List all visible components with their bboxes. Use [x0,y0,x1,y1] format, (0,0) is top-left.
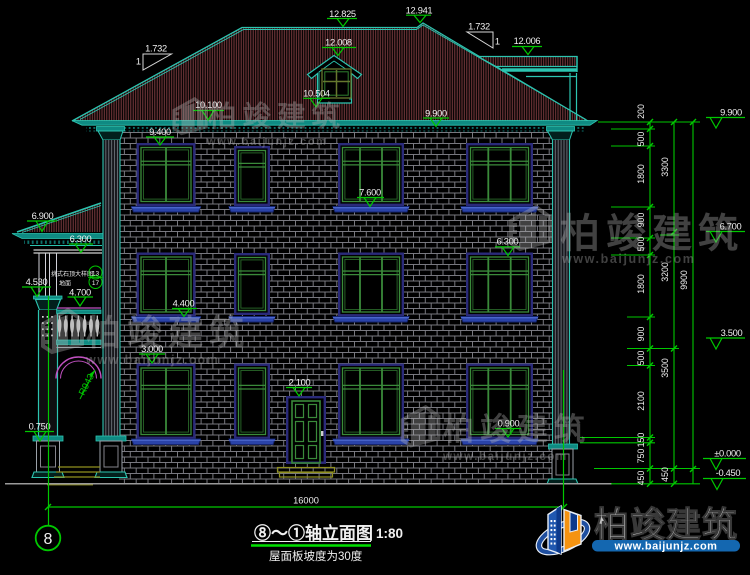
svg-text:4.700: 4.700 [69,288,91,298]
svg-text:地面: 地面 [59,280,71,288]
svg-text:9.900: 9.900 [720,108,742,118]
svg-text:200: 200 [636,104,646,119]
svg-text:750: 750 [636,449,646,464]
svg-text:柏竣建筑: 柏竣建筑 [443,412,591,447]
svg-text:450: 450 [636,471,646,486]
svg-text:1.732: 1.732 [145,44,167,54]
svg-text:12.006: 12.006 [514,36,541,46]
svg-text:屋面板坡度为30度: 屋面板坡度为30度 [269,549,363,563]
svg-text:www.baijunjz.com: www.baijunjz.com [206,136,328,148]
svg-text:1800: 1800 [636,274,646,294]
svg-text:±0.000: ±0.000 [714,449,741,459]
svg-text:9.400: 9.400 [149,127,171,137]
svg-text:6.300: 6.300 [70,234,92,244]
svg-text:16000: 16000 [293,496,319,506]
svg-text:1:80: 1:80 [376,526,403,541]
svg-text:www.baijunjz.com: www.baijunjz.com [85,353,219,367]
svg-text:8: 8 [44,531,53,548]
svg-text:450: 450 [660,467,670,482]
svg-text:2.100: 2.100 [289,378,311,388]
svg-text:13: 13 [92,271,100,278]
svg-text:1.732: 1.732 [468,22,490,32]
svg-text:1: 1 [136,57,141,67]
svg-text:柏竣建筑: 柏竣建筑 [208,100,346,133]
svg-text:9900: 9900 [679,270,689,290]
svg-text:柏竣建筑: 柏竣建筑 [86,313,250,353]
svg-text:4.400: 4.400 [173,299,195,309]
svg-text:7.600: 7.600 [359,188,381,198]
svg-text:900: 900 [636,327,646,342]
svg-text:2100: 2100 [636,391,646,411]
svg-text:12.941: 12.941 [406,6,433,16]
svg-text:500: 500 [636,351,646,366]
svg-text:www.baijunjz.com: www.baijunjz.com [561,252,695,266]
svg-text:500: 500 [636,132,646,147]
svg-text:3500: 3500 [660,358,670,378]
svg-text:17: 17 [92,280,100,287]
svg-text:柏竣建筑: 柏竣建筑 [560,212,744,256]
svg-text:www.baijunjz.com: www.baijunjz.com [614,541,718,553]
svg-text:6.900: 6.900 [32,211,54,221]
svg-text:9.900: 9.900 [425,109,447,119]
svg-text:4.530: 4.530 [26,277,48,287]
svg-text:柏竣建筑: 柏竣建筑 [594,505,738,545]
svg-text:10.504: 10.504 [303,89,330,99]
svg-text:1800: 1800 [636,164,646,184]
svg-text:挑式石顶大样图: 挑式石顶大样图 [51,270,93,278]
svg-text:0.750: 0.750 [29,422,51,432]
svg-text:150: 150 [636,433,646,448]
svg-text:3300: 3300 [660,157,670,177]
svg-text:-0.450: -0.450 [716,468,741,478]
svg-text:1: 1 [495,37,500,47]
svg-text:⑧～①轴立面图: ⑧～①轴立面图 [254,523,373,543]
svg-text:12.825: 12.825 [329,9,356,19]
svg-text:www.baijunjz.com: www.baijunjz.com [442,451,568,463]
svg-text:12.008: 12.008 [325,38,352,48]
svg-text:3.500: 3.500 [721,328,743,338]
